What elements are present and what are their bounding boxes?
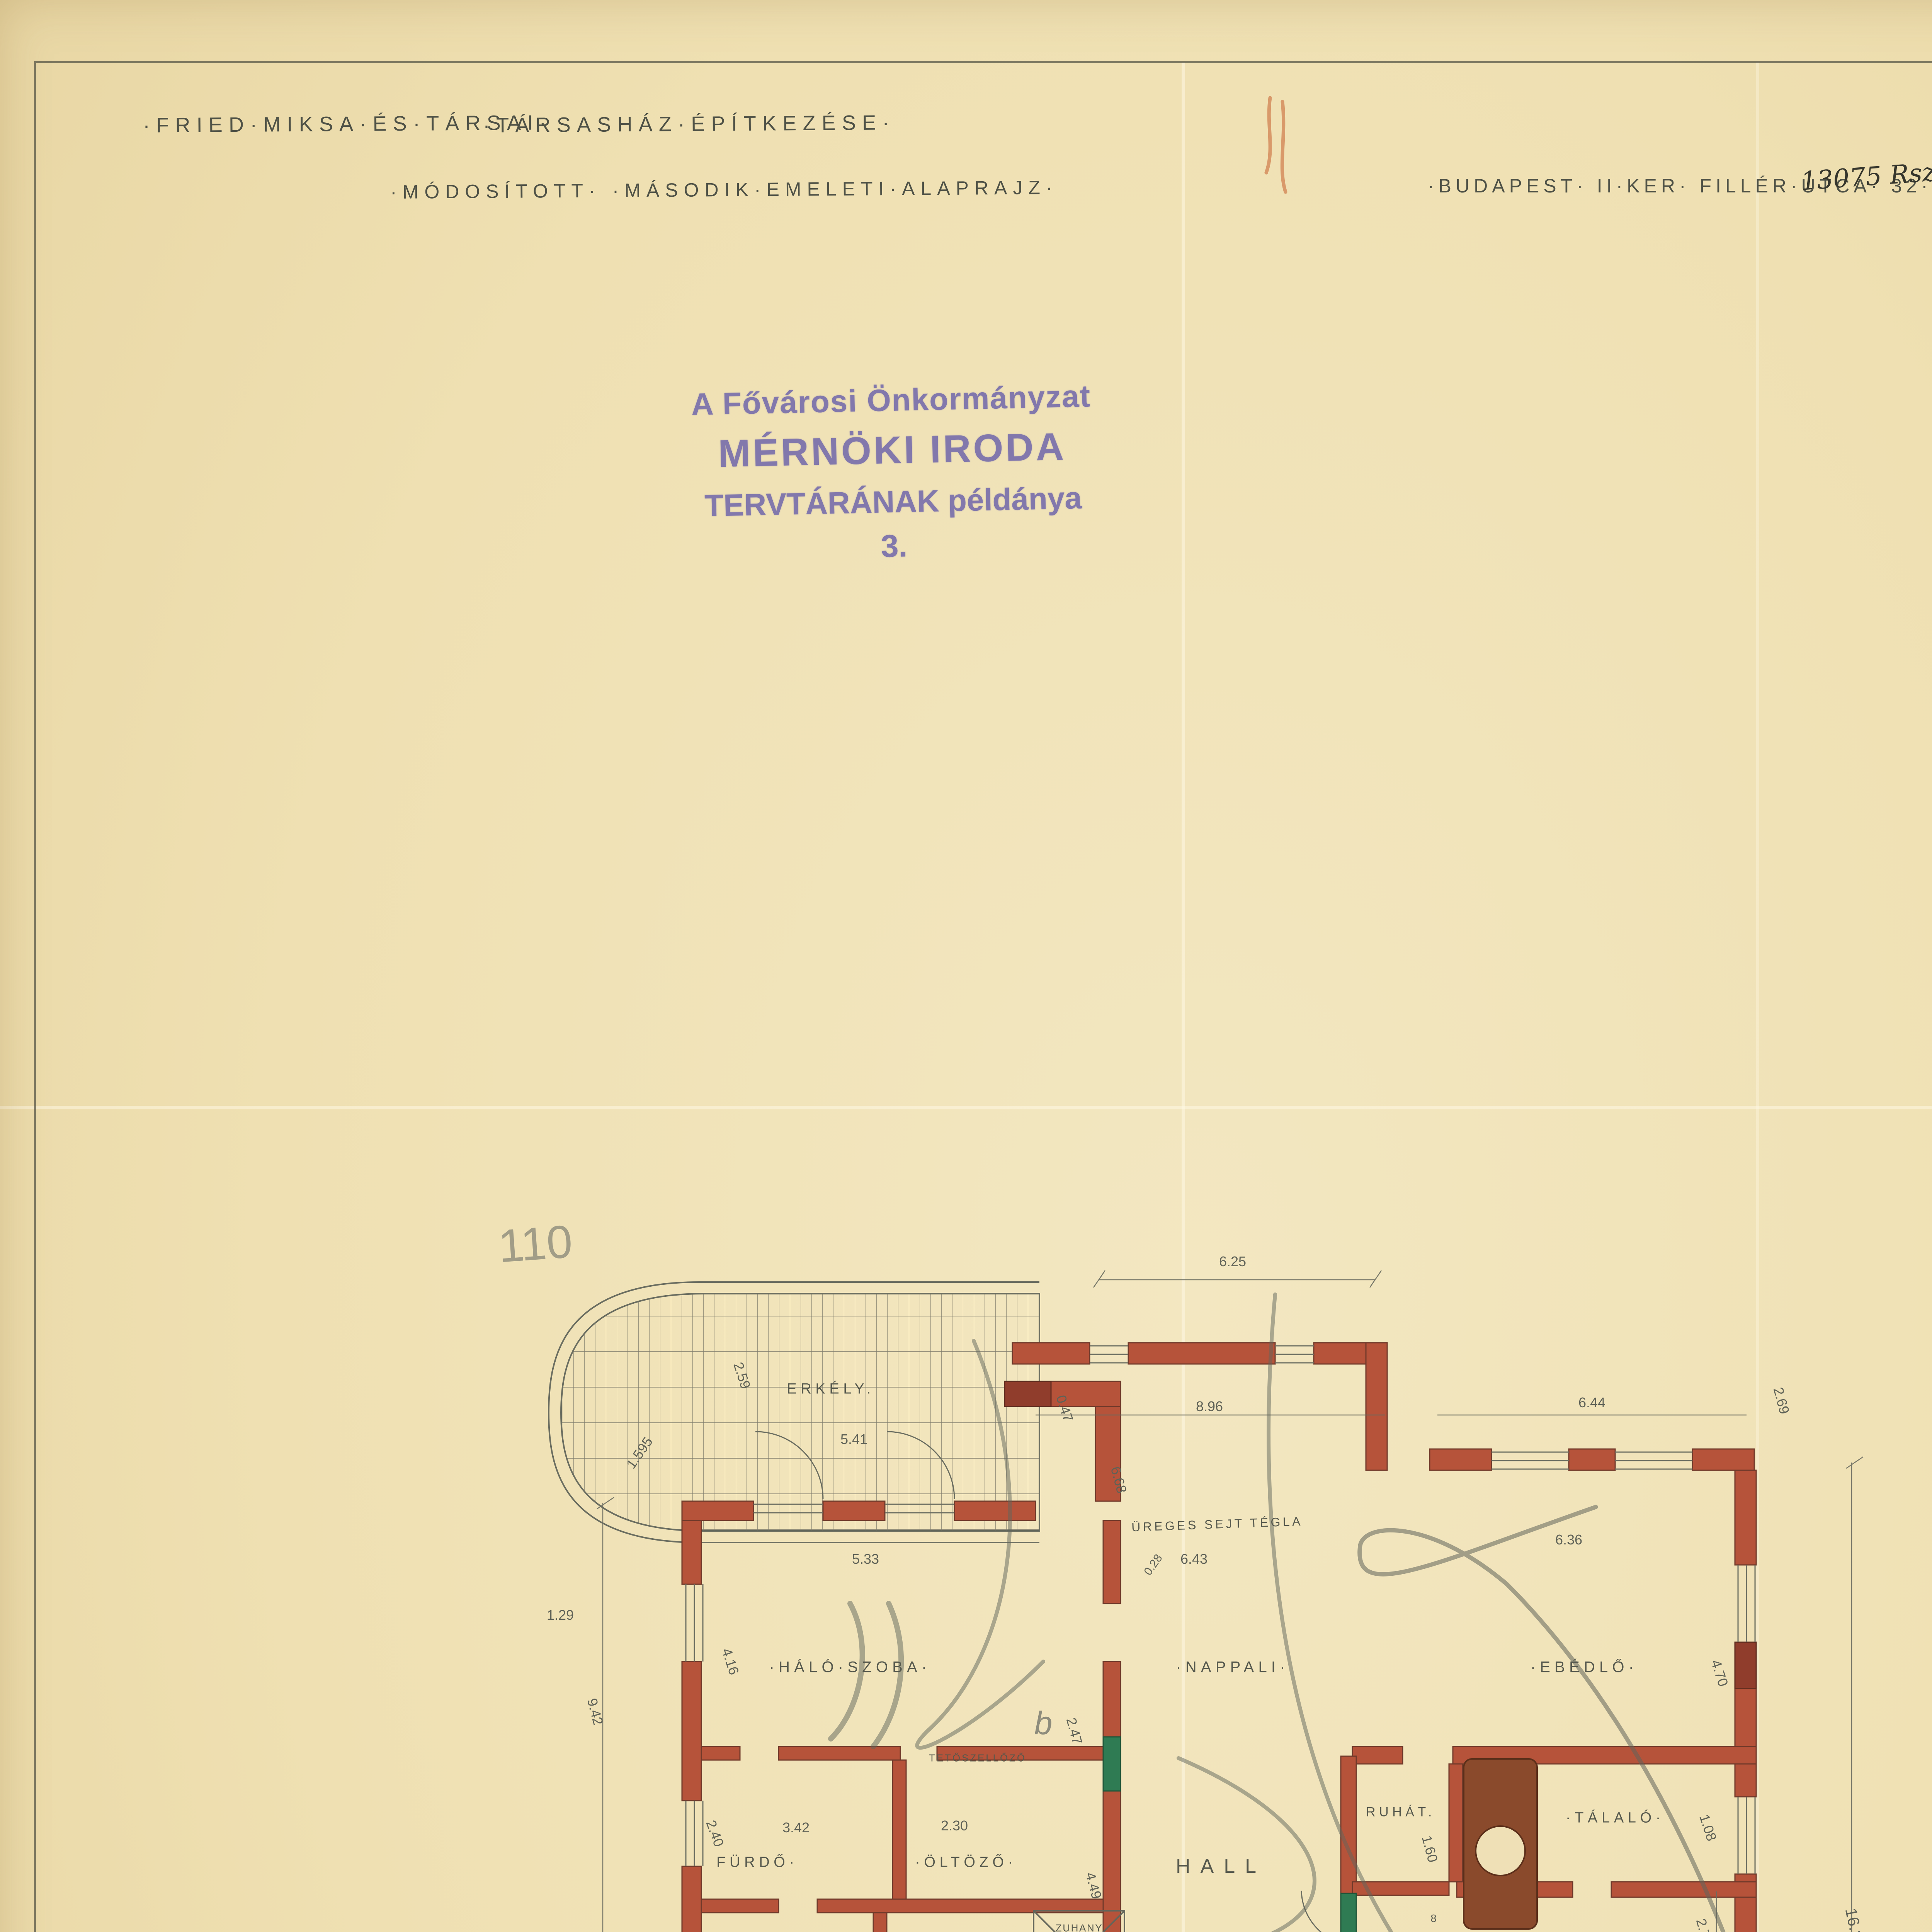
dim: 6.43: [1180, 1551, 1207, 1567]
subtitle-line: ·MÓDOSÍTOTT· ·MÁSODIK·EMELETI·ALAPRAJZ·: [390, 176, 1058, 203]
room-label-erkely: ERKÉLY.: [787, 1381, 874, 1398]
pencil-b-mark: b: [1034, 1705, 1053, 1742]
dim: 5.33: [852, 1551, 879, 1567]
mernoki-iroda-stamp: A Fővárosi Önkormányzat MÉRNÖKI IRODA TE…: [663, 378, 1122, 570]
room-label-hall: HALL: [1176, 1855, 1266, 1878]
dim: 6.25: [1219, 1253, 1246, 1270]
dim: 2.30: [941, 1818, 968, 1834]
room-label-nappali: ·NAPPALI·: [1176, 1659, 1289, 1676]
stamp-line-2: MÉRNÖKI IRODA: [664, 423, 1121, 478]
dim: 1.29: [547, 1607, 574, 1623]
room-label-talalo: ·TÁLALÓ·: [1566, 1810, 1665, 1827]
room-label-halo-szoba: ·HÁLÓ·SZOBA·: [769, 1659, 931, 1676]
balcony-hatch: [561, 1294, 1039, 1531]
chimney-flue: [1476, 1826, 1525, 1876]
dim: 6.36: [1555, 1532, 1582, 1548]
drawing-sheet: ·FRIED·MIKSA·ÉS·TÁRSAI· ·TÁRSASHÁZ·ÉPÍTK…: [0, 0, 1932, 1932]
dim: 6.44: [1578, 1395, 1605, 1411]
project-line: ·TÁRSASHÁZ·ÉPÍTKEZÉSE·: [483, 111, 896, 137]
annotation-tetoszellozo: TETŐSZELLŐZŐ: [929, 1752, 1026, 1764]
wall-mark: 8: [1430, 1912, 1437, 1925]
stamp-line-3: TERVTÁRÁNAK példánya: [665, 480, 1122, 525]
dim: 3.42: [782, 1820, 810, 1836]
dim: 8.96: [1196, 1398, 1223, 1415]
orange-crayon-marks: [1258, 91, 1300, 203]
room-label-zuhany: ZUHANY: [1056, 1922, 1103, 1932]
room-label-oltozo: ·ÖLTÖZŐ·: [915, 1854, 1017, 1871]
dim: 5.41: [840, 1431, 867, 1447]
room-label-ebedlo: ·EBÉDLŐ·: [1531, 1659, 1638, 1676]
room-label-furdo: FÜRDŐ·: [716, 1854, 798, 1871]
room-label-ruhat: RUHÁT.: [1366, 1805, 1435, 1820]
